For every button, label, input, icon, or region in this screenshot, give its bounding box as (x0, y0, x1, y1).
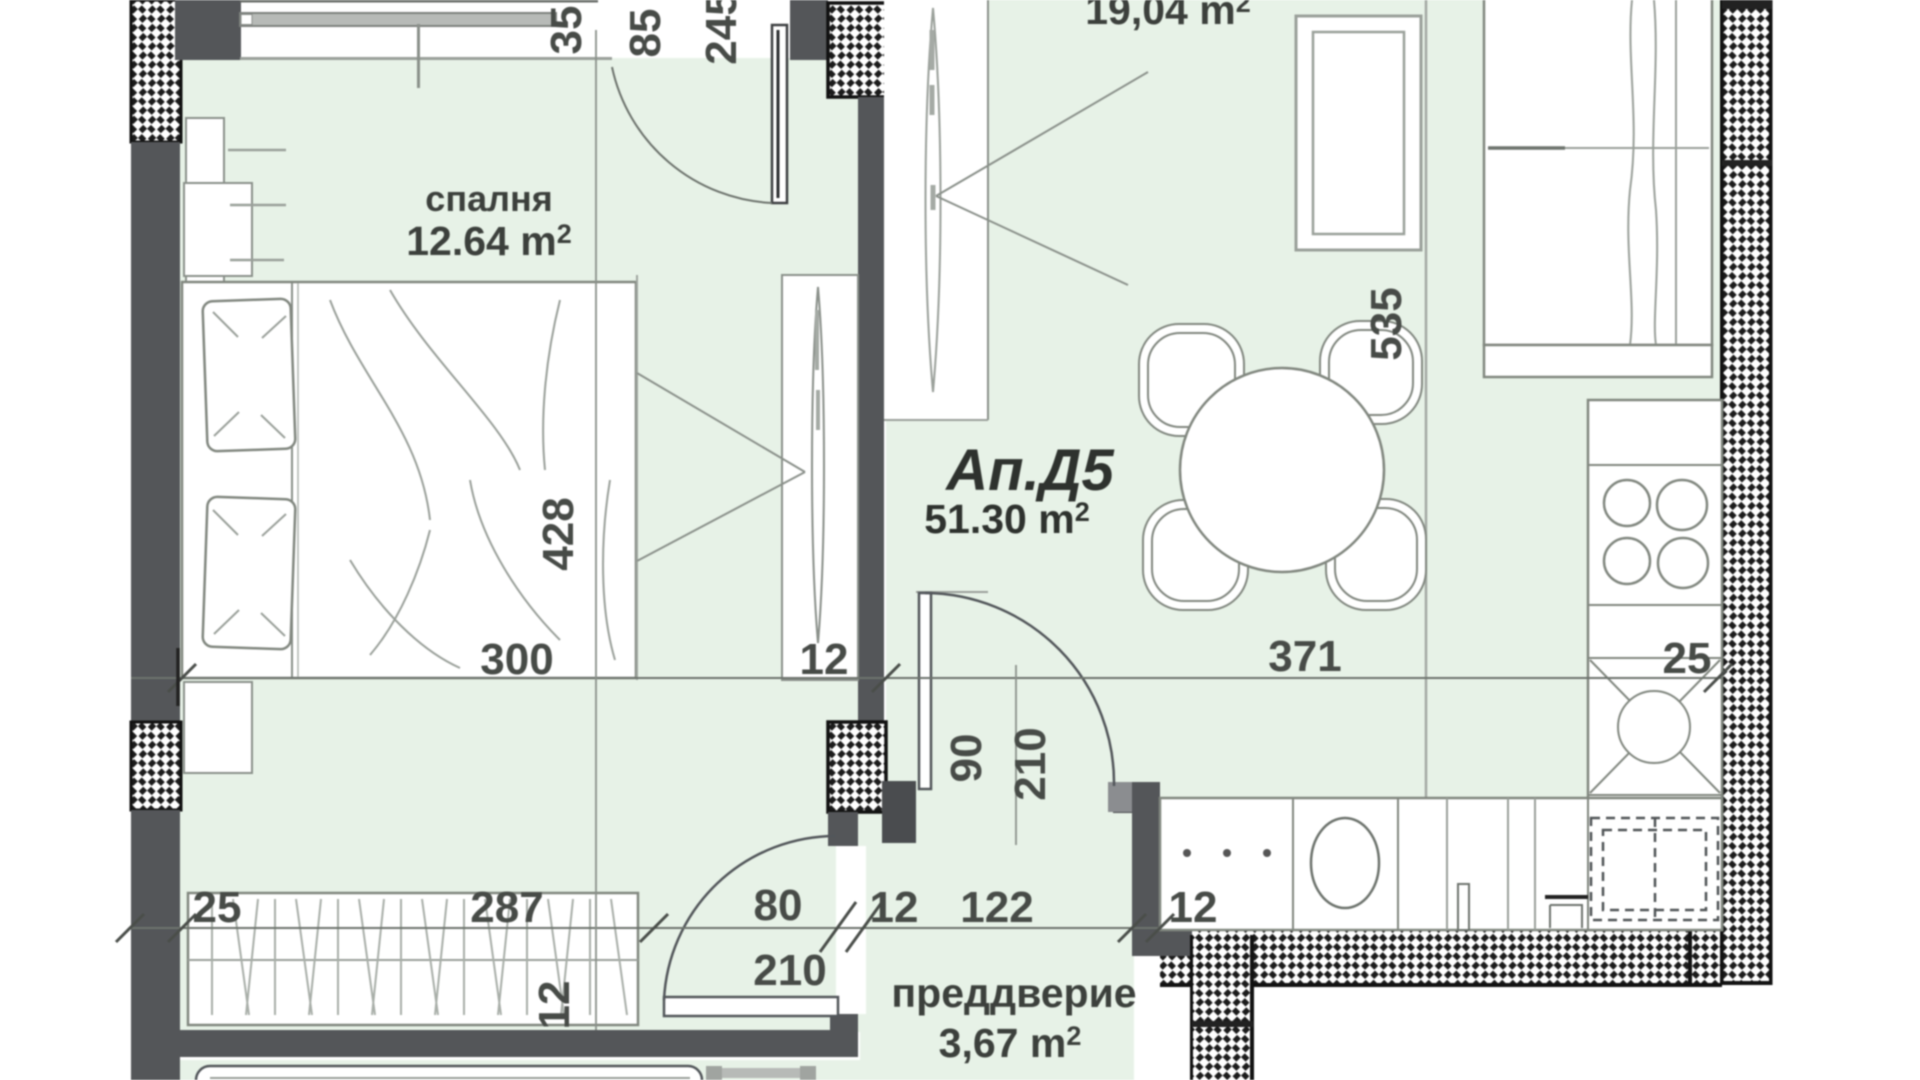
svg-text:85: 85 (621, 9, 670, 58)
svg-text:12: 12 (870, 883, 919, 932)
svg-text:спалня: спалня (425, 178, 552, 219)
svg-text:3,67 m2: 3,67 m2 (939, 1020, 1082, 1066)
svg-text:преддверие: преддверие (891, 970, 1136, 1016)
svg-text:25: 25 (193, 883, 242, 932)
svg-text:287: 287 (470, 883, 543, 932)
svg-text:371: 371 (1268, 632, 1341, 681)
svg-text:245: 245 (697, 0, 746, 65)
svg-text:51.30 m2: 51.30 m2 (924, 496, 1089, 542)
svg-text:90: 90 (942, 734, 991, 783)
svg-text:12: 12 (1169, 883, 1218, 932)
svg-text:Ап.Д5: Ап.Д5 (944, 438, 1114, 503)
svg-text:428: 428 (534, 497, 583, 570)
svg-text:19,04 m2: 19,04 m2 (1085, 0, 1250, 33)
svg-text:25: 25 (1663, 634, 1712, 683)
svg-text:210: 210 (1006, 727, 1055, 800)
svg-text:122: 122 (960, 883, 1033, 932)
svg-text:210: 210 (753, 946, 826, 995)
svg-text:535: 535 (1362, 287, 1411, 360)
svg-text:12: 12 (800, 635, 849, 684)
svg-text:300: 300 (480, 635, 553, 684)
svg-text:12: 12 (530, 981, 579, 1030)
svg-text:35: 35 (542, 6, 591, 55)
svg-text:12.64 m2: 12.64 m2 (406, 218, 571, 264)
svg-text:80: 80 (754, 881, 803, 930)
